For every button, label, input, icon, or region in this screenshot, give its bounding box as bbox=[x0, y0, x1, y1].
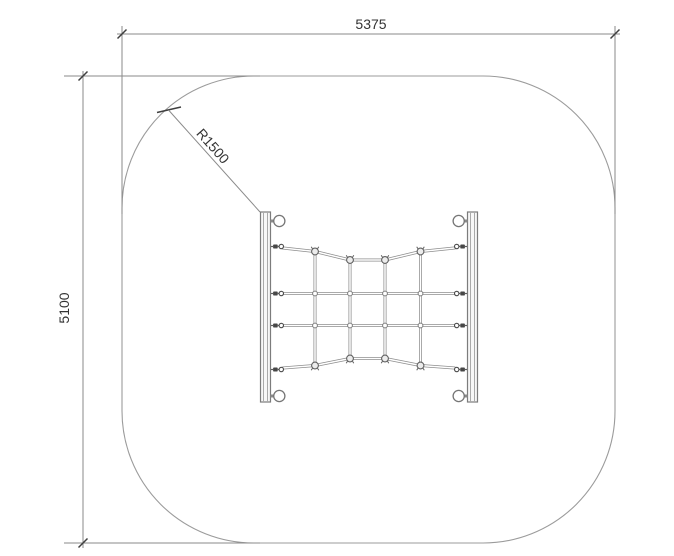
radius-label: R1500 bbox=[193, 125, 232, 167]
knot-icon bbox=[311, 362, 319, 370]
dimension-width: 5375 bbox=[117, 16, 620, 214]
post-body bbox=[261, 212, 271, 402]
tensioner-icon bbox=[271, 367, 284, 371]
post-cap-ball-icon bbox=[453, 390, 467, 401]
radius-leader-line bbox=[169, 110, 261, 212]
safety-area-outline bbox=[122, 76, 615, 543]
safety-area-boundary bbox=[122, 76, 615, 543]
crossing-ring-icon bbox=[313, 291, 318, 296]
tensioner-icon bbox=[271, 291, 284, 295]
crossing-ring-icon bbox=[348, 323, 353, 328]
dimension-width-label: 5375 bbox=[355, 16, 386, 32]
post-cap-ball-icon bbox=[271, 215, 285, 226]
crossing-ring-icon bbox=[383, 291, 388, 296]
radius-tick-icon bbox=[157, 107, 181, 113]
dimension-height-label: 5100 bbox=[56, 292, 72, 323]
crossing-ring-icon bbox=[418, 291, 423, 296]
top-rope bbox=[283, 248, 455, 260]
rope-tensioners bbox=[271, 244, 468, 371]
tensioner-icon bbox=[271, 323, 284, 327]
post-caps bbox=[271, 215, 468, 401]
crossing-ring-icon bbox=[348, 291, 353, 296]
knot-icon bbox=[381, 255, 389, 263]
rope-knots bbox=[311, 247, 424, 371]
crossing-ring-icon bbox=[313, 323, 318, 328]
knot-icon bbox=[311, 247, 319, 255]
tensioner-icon bbox=[455, 291, 468, 295]
knot-icon bbox=[417, 247, 425, 255]
rope-crossings bbox=[313, 291, 423, 328]
radius-callout: R1500 bbox=[157, 107, 260, 212]
net-horizontal-ropes bbox=[283, 248, 455, 368]
drawing-canvas: 5375 5100 R1500 bbox=[0, 0, 674, 556]
net-vertical-ropes bbox=[315, 252, 421, 366]
knot-icon bbox=[346, 255, 354, 263]
technical-drawing: 5375 5100 R1500 bbox=[0, 0, 674, 556]
tensioner-icon bbox=[455, 367, 468, 371]
post-cap-ball-icon bbox=[271, 390, 285, 401]
post-cap-ball-icon bbox=[453, 215, 467, 226]
dimension-height: 5100 bbox=[56, 71, 260, 548]
knot-icon bbox=[381, 355, 389, 363]
knot-icon bbox=[417, 362, 425, 370]
right-post bbox=[468, 212, 478, 402]
post-body bbox=[468, 212, 478, 402]
climbing-net bbox=[261, 212, 478, 402]
left-post bbox=[261, 212, 271, 402]
knot-icon bbox=[346, 355, 354, 363]
crossing-ring-icon bbox=[418, 323, 423, 328]
crossing-ring-icon bbox=[383, 323, 388, 328]
tensioner-icon bbox=[455, 244, 468, 248]
tensioner-icon bbox=[271, 244, 284, 248]
tensioner-icon bbox=[455, 323, 468, 327]
